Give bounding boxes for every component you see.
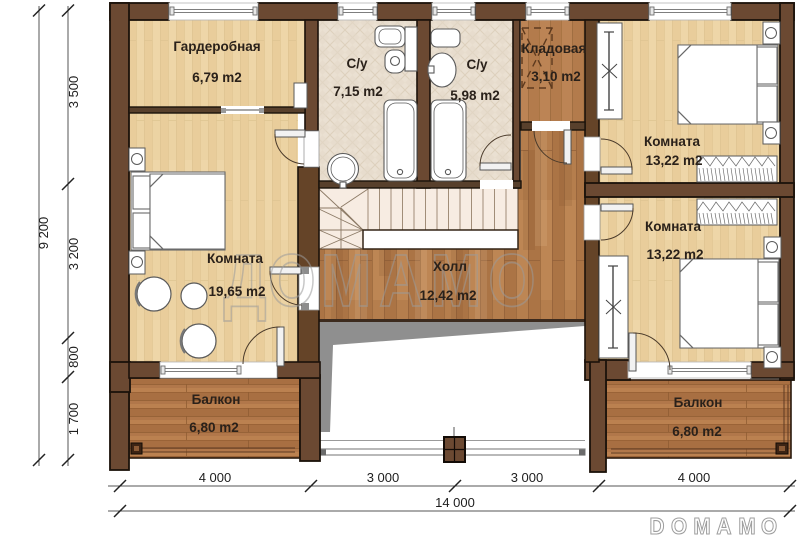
svg-text:1 700: 1 700 (66, 403, 81, 436)
svg-text:3 200: 3 200 (66, 238, 81, 271)
svg-text:5,98 m2: 5,98 m2 (450, 88, 500, 103)
svg-text:3 000: 3 000 (367, 470, 400, 485)
svg-text:D: D (650, 513, 665, 539)
svg-text:800: 800 (66, 346, 81, 368)
svg-text:Комната: Комната (645, 219, 702, 234)
svg-text:6,80 m2: 6,80 m2 (189, 420, 239, 435)
svg-text:6,79 m2: 6,79 m2 (192, 70, 242, 85)
svg-text:3 000: 3 000 (511, 470, 544, 485)
svg-text:6,80 m2: 6,80 m2 (672, 424, 722, 439)
svg-text:O: O (761, 513, 777, 539)
svg-text:М: М (321, 240, 372, 322)
svg-text:Комната: Комната (644, 134, 701, 149)
svg-text:О: О (268, 240, 315, 322)
svg-text:Балкон: Балкон (674, 395, 723, 410)
svg-text:O: O (671, 513, 687, 539)
svg-text:3 500: 3 500 (66, 76, 81, 109)
svg-text:9 200: 9 200 (36, 217, 51, 250)
svg-text:Балкон: Балкон (192, 392, 241, 407)
svg-text:С/у: С/у (346, 56, 368, 71)
svg-text:4 000: 4 000 (199, 470, 232, 485)
svg-text:М: М (431, 240, 482, 322)
svg-text:Кладовая: Кладовая (522, 41, 587, 56)
svg-text:О: О (488, 240, 535, 322)
svg-text:Комната: Комната (207, 251, 264, 266)
svg-text:A: A (717, 513, 732, 539)
svg-text:12,42 m2: 12,42 m2 (419, 288, 476, 303)
svg-text:13,22 m2: 13,22 m2 (646, 247, 703, 262)
svg-text:19,65 m2: 19,65 m2 (208, 284, 265, 299)
svg-text:3,10 m2: 3,10 m2 (531, 69, 581, 84)
svg-text:13,22 m2: 13,22 m2 (645, 153, 702, 168)
svg-text:4 000: 4 000 (678, 470, 711, 485)
svg-text:M: M (738, 513, 755, 539)
svg-text:7,15 m2: 7,15 m2 (333, 84, 383, 99)
svg-text:M: M (693, 513, 710, 539)
svg-text:С/у: С/у (466, 57, 488, 72)
svg-text:14 000: 14 000 (435, 495, 475, 510)
svg-text:Холл: Холл (433, 259, 467, 274)
svg-text:А: А (379, 240, 423, 322)
svg-text:Гардеробная: Гардеробная (173, 39, 260, 54)
